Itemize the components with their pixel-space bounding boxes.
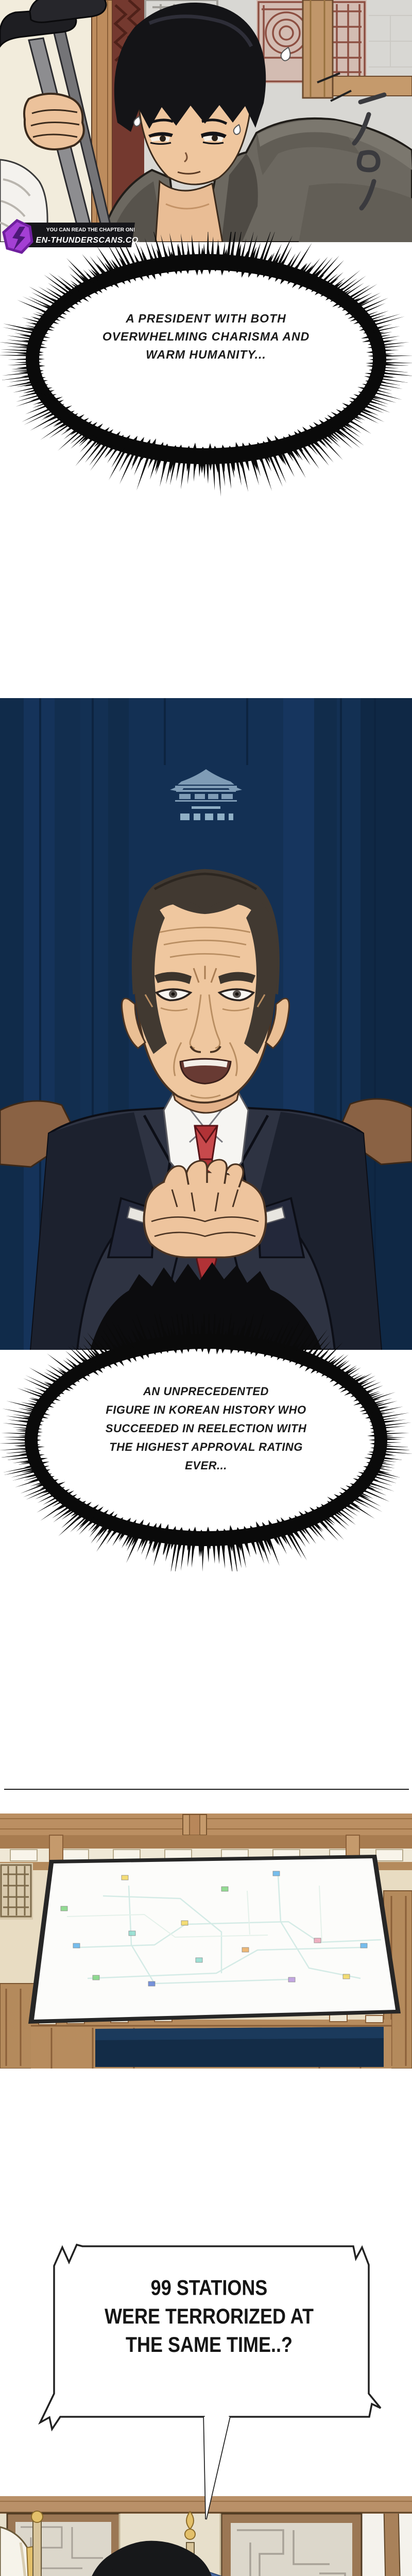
svg-text:AN UNPRECEDENTED: AN UNPRECEDENTED (143, 1385, 269, 1398)
svg-text:99 STATIONS: 99 STATIONS (151, 2276, 268, 2300)
svg-text:OVERWHELMING CHARISMA AND: OVERWHELMING CHARISMA AND (102, 330, 310, 343)
svg-text:THE HIGHEST APPROVAL RATING: THE HIGHEST APPROVAL RATING (109, 1440, 303, 1453)
svg-text:FIGURE IN KOREAN HISTORY WHO: FIGURE IN KOREAN HISTORY WHO (106, 1403, 306, 1416)
svg-text:THE SAME TIME..?: THE SAME TIME..? (126, 2333, 293, 2357)
svg-text:YOU CAN READ THE CHAPTER ON!: YOU CAN READ THE CHAPTER ON! (46, 227, 135, 233)
svg-text:WERE TERRORIZED AT: WERE TERRORIZED AT (105, 2305, 314, 2329)
svg-text:EN-THUNDERSCANS.COM: EN-THUNDERSCANS.COM (36, 236, 139, 245)
svg-text:WARM HUMANITY...: WARM HUMANITY... (146, 348, 266, 361)
svg-text:SUCCEEDED IN REELECTION WITH: SUCCEEDED IN REELECTION WITH (106, 1422, 307, 1435)
svg-text:EVER...: EVER... (185, 1459, 227, 1472)
svg-text:A PRESIDENT WITH BOTH: A PRESIDENT WITH BOTH (125, 312, 286, 325)
